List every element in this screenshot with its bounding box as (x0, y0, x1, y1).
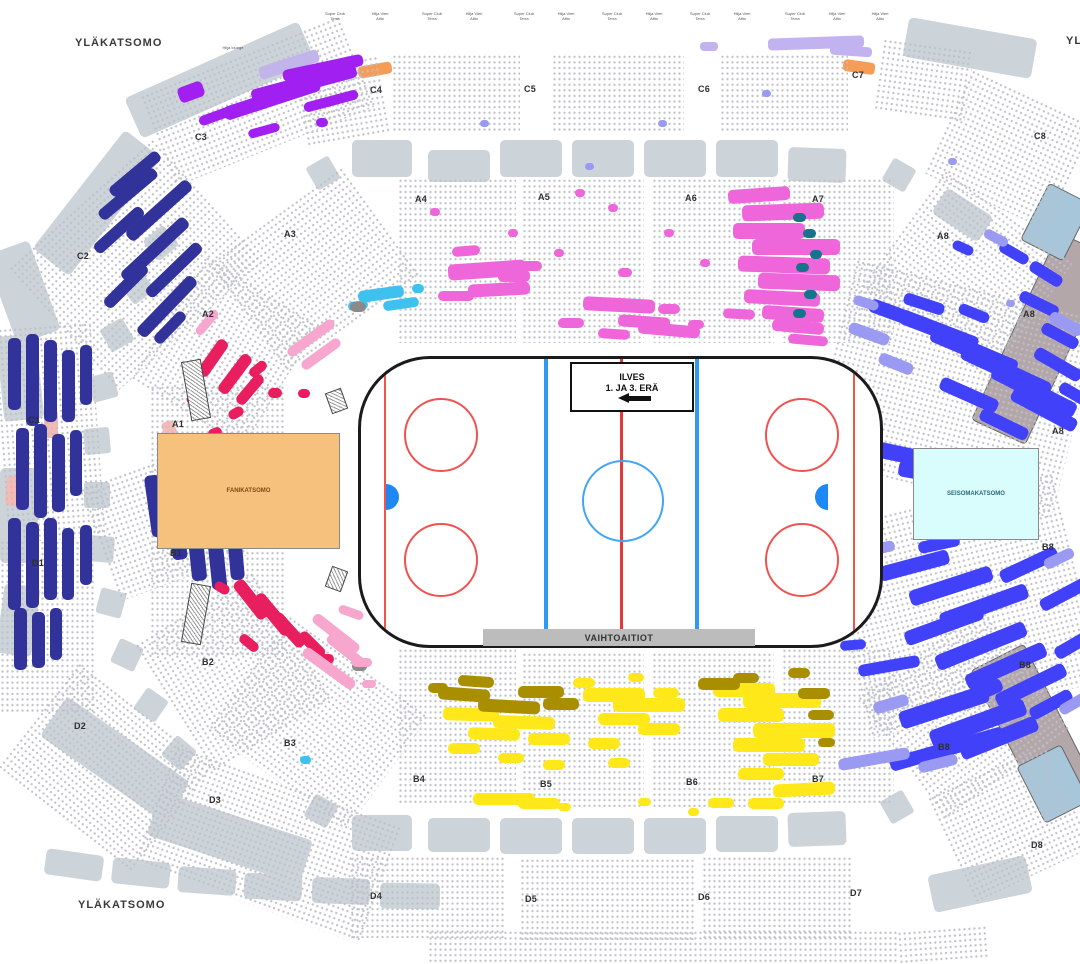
sold-seat-cluster-yellow[interactable] (733, 738, 805, 752)
sold-seat-cluster-yellow[interactable] (638, 798, 651, 806)
sold-seat-cluster-orchid[interactable] (498, 270, 530, 282)
sold-seat-cluster-peri[interactable] (1006, 300, 1015, 307)
concourse-slab (716, 140, 778, 177)
period-direction-box: ILVES 1. JA 3. ERÄ (570, 362, 694, 412)
suite-label: Hilja VieriAitio (466, 12, 483, 21)
section-badge-b8: B8 (1019, 660, 1031, 670)
sold-seat-cluster-olive[interactable] (818, 738, 835, 747)
section-badge-d5: D5 (525, 894, 537, 904)
section-badge-b8: B8 (1042, 542, 1054, 552)
sold-seat-cluster-peri[interactable] (948, 158, 957, 165)
sold-seat-cluster-navy[interactable] (62, 350, 75, 422)
sold-seat-cluster-yellow[interactable] (518, 798, 560, 809)
section-badge-a2: A2 (202, 309, 214, 319)
concourse-slab (428, 818, 490, 852)
sold-seat-cluster-olive[interactable] (428, 683, 448, 693)
sold-seat-cluster-yellow[interactable] (708, 798, 734, 808)
sold-seat-cluster-teal[interactable] (810, 250, 822, 259)
section-badge-c7: C7 (852, 70, 864, 80)
sold-seat-cluster-yellow[interactable] (468, 727, 520, 741)
goal-crease-right (815, 484, 828, 510)
sold-seat-cluster-yellow[interactable] (588, 738, 620, 749)
concourse-slab (572, 818, 634, 854)
seat-block[interactable] (520, 858, 695, 940)
concourse-slab (500, 140, 562, 177)
faceoff-circle-bottom-right (765, 523, 839, 597)
suite-label: Hilja VieriAitio (734, 12, 751, 21)
sold-seat-cluster-yellow[interactable] (498, 753, 524, 763)
sold-seat-cluster-lightpink[interactable] (362, 680, 376, 688)
sold-seat-cluster-olive[interactable] (808, 710, 834, 720)
concourse-slab (644, 818, 706, 854)
section-badge-b7: B7 (812, 774, 824, 784)
concourse-slab (500, 818, 562, 854)
sold-seat-cluster-teal[interactable] (793, 309, 806, 318)
sold-seat-cluster-teal[interactable] (804, 290, 817, 299)
faceoff-circle-top-right (765, 398, 839, 472)
section-badge-b3: B3 (284, 738, 296, 748)
suite-label: Hilja VieriAitio (558, 12, 575, 21)
sold-seat-cluster-teal[interactable] (803, 229, 816, 238)
faceoff-circle-bottom-left (404, 523, 478, 597)
sold-seat-cluster-lightpink[interactable] (337, 604, 365, 621)
section-badge-a8: A8 (1052, 426, 1064, 436)
center-circle (582, 460, 664, 542)
camera-platform (325, 566, 348, 592)
section-badge-c2: C2 (77, 251, 89, 261)
sold-seat-cluster-peri[interactable] (658, 120, 667, 127)
suite-label: Hilja VieriAitio (829, 12, 846, 21)
suite-label: Hilja VieriAitio (646, 12, 663, 21)
section-badge-a7: A7 (812, 194, 824, 204)
sold-seat-cluster-navy[interactable] (26, 334, 39, 426)
sold-seat-cluster-navy[interactable] (32, 612, 45, 668)
sold-seat-cluster-orchid[interactable] (438, 291, 474, 301)
benches-bar: VAIHTOAITIOT (483, 629, 755, 646)
sold-seat-cluster-yellow[interactable] (628, 673, 644, 682)
section-badge-a5: A5 (538, 192, 550, 202)
sold-seat-cluster-navy[interactable] (34, 424, 47, 518)
sold-seat-cluster-orchid[interactable] (664, 229, 674, 237)
section-badge-b6: B6 (686, 777, 698, 787)
sold-seat-cluster-orchid[interactable] (618, 268, 632, 277)
section-badge-b5: B5 (540, 779, 552, 789)
section-badge-c6: C6 (698, 84, 710, 94)
camera-platform (325, 388, 348, 414)
sold-seat-cluster-yellow[interactable] (653, 688, 679, 698)
concourse-slab (352, 140, 412, 177)
seat-block[interactable] (720, 54, 848, 134)
suite-label: Super ClubTerra (602, 12, 622, 21)
goal-crease-left (386, 484, 399, 510)
sold-seat-cluster-orchid[interactable] (554, 249, 564, 257)
sold-seat-cluster-navy[interactable] (44, 518, 57, 600)
sold-seat-cluster-yellow[interactable] (608, 758, 630, 768)
section-badge-d3: D3 (209, 795, 221, 805)
section-badge-a8: A8 (937, 231, 949, 241)
sold-seat-cluster-navy[interactable] (8, 518, 21, 610)
section-badge-d6: D6 (698, 892, 710, 902)
sold-seat-cluster-navy[interactable] (44, 340, 57, 422)
sold-seat-cluster-yellow[interactable] (543, 760, 565, 770)
section-badge-d2: D2 (74, 721, 86, 731)
section-badge-a3: A3 (284, 229, 296, 239)
sold-seat-cluster-navy[interactable] (52, 434, 65, 512)
sold-seat-cluster-orchid[interactable] (723, 308, 755, 320)
concourse-slab (716, 816, 778, 852)
left-arrow-icon (613, 394, 651, 402)
suite-label: Super ClubTerra (690, 12, 710, 21)
sold-seat-cluster-orchid[interactable] (558, 318, 584, 328)
section-badge-d4: D4 (370, 891, 382, 901)
sold-seat-cluster-navy[interactable] (16, 428, 29, 510)
sold-seat-cluster-crimson[interactable] (298, 389, 310, 398)
team-name: ILVES (619, 372, 644, 382)
section-badge-b8: B8 (938, 742, 950, 752)
sold-seat-cluster-yellow[interactable] (688, 808, 699, 816)
sold-seat-cluster-orchid[interactable] (575, 189, 585, 197)
sold-seat-cluster-navy[interactable] (62, 528, 74, 600)
sold-seat-cluster-teal[interactable] (793, 213, 806, 222)
concourse-slab (43, 848, 104, 882)
sold-seat-cluster-orchid[interactable] (700, 259, 710, 267)
sold-seat-cluster-olive[interactable] (518, 686, 564, 698)
sold-seat-cluster-orchid[interactable] (468, 281, 531, 297)
sold-seat-cluster-yellow[interactable] (558, 803, 571, 811)
sold-seat-cluster-olive[interactable] (543, 698, 579, 710)
sold-seat-cluster-yellow[interactable] (528, 733, 570, 745)
sold-seat-cluster-olive[interactable] (733, 673, 759, 683)
section-badge-c8: C8 (1034, 131, 1046, 141)
sold-seat-cluster-yellow[interactable] (573, 678, 595, 688)
period-text: 1. JA 3. ERÄ (606, 383, 659, 393)
standing-section-label: SEISOMAKATSOMO (947, 491, 1005, 497)
sold-seat-cluster-yellow[interactable] (738, 768, 784, 780)
suite-label: Super ClubTerra (325, 12, 345, 21)
suite-label: Hilja VieriAitio (372, 12, 389, 21)
arena-seat-map: YLÄKATSOMO YLÄKATSOMO YLÄKATSOMO A1A2A3A… (0, 0, 1080, 964)
suite-label: Super ClubTerra (422, 12, 442, 21)
sold-seat-cluster-orchid[interactable] (733, 223, 805, 239)
sold-seat-cluster-yellow[interactable] (613, 698, 685, 712)
upper-stand-label-top-right: YLÄKATSOMO (1066, 35, 1080, 47)
sold-seat-cluster-orchid[interactable] (788, 333, 829, 346)
seat-block[interactable] (702, 856, 852, 938)
suite-label: Hilja VieriAitio (872, 12, 889, 21)
sold-seat-cluster-yellow[interactable] (763, 753, 819, 766)
upper-stand-label-top-left: YLÄKATSOMO (75, 37, 162, 49)
seat-block[interactable] (428, 930, 898, 962)
sold-seat-cluster-yellow[interactable] (718, 708, 784, 722)
sold-seat-cluster-lightpink[interactable] (352, 658, 372, 667)
fan-stand-label: FANIKATSOMO (227, 488, 271, 494)
standing-section-box[interactable]: SEISOMAKATSOMO (913, 448, 1039, 540)
sold-seat-cluster-orchid[interactable] (508, 229, 518, 237)
sold-seat-cluster-navy[interactable] (14, 608, 27, 670)
sold-seat-cluster-orchid[interactable] (608, 204, 618, 212)
sold-seat-cluster-crimson[interactable] (268, 388, 282, 398)
sold-seat-cluster-sky[interactable] (300, 756, 311, 764)
concourse-slab (787, 811, 846, 847)
sold-seat-cluster-peri[interactable] (480, 120, 489, 127)
sold-seat-cluster-orchid[interactable] (598, 328, 631, 340)
section-badge-c3: C3 (195, 132, 207, 142)
section-badge-a6: A6 (685, 193, 697, 203)
section-badge-a8: A8 (1023, 309, 1035, 319)
sold-seat-cluster-teal[interactable] (796, 263, 809, 272)
blue-line-right (695, 359, 699, 645)
sold-seat-cluster-orchid[interactable] (430, 208, 440, 216)
section-badge-a4: A4 (415, 194, 427, 204)
sold-seat-cluster-orchid[interactable] (742, 203, 825, 222)
section-badge-d7: D7 (850, 888, 862, 898)
sold-seat-cluster-yellow[interactable] (448, 743, 480, 754)
upper-stand-label-bottom-left: YLÄKATSOMO (78, 899, 165, 911)
sold-seat-cluster-orchid[interactable] (728, 186, 791, 204)
section-badge-c5: C5 (524, 84, 536, 94)
section-badge-b1: B1 (170, 548, 182, 558)
sold-seat-cluster-orchid[interactable] (658, 304, 680, 314)
goal-line-right (853, 359, 855, 645)
suite-label: Hilja lounge (223, 46, 244, 51)
suite-label: Super ClubTerra (785, 12, 805, 21)
blue-line-left (544, 359, 548, 645)
section-badge-b4: B4 (413, 774, 425, 784)
concourse-slab (572, 140, 634, 177)
sold-seat-cluster-peri[interactable] (762, 90, 771, 97)
suite-label: Super ClubTerra (514, 12, 534, 21)
sold-seat-cluster-navy[interactable] (70, 430, 82, 496)
section-badge-c4: C4 (370, 85, 382, 95)
sold-seat-cluster-navy[interactable] (80, 525, 92, 585)
sold-seat-cluster-olive[interactable] (788, 668, 810, 678)
sold-seat-cluster-peri[interactable] (585, 163, 594, 170)
sold-seat-cluster-sky[interactable] (412, 284, 424, 293)
section-badge-c1: C1 (28, 415, 40, 425)
sold-seat-cluster-orchid[interactable] (752, 239, 840, 255)
tier-band-lavender (700, 42, 718, 51)
fan-stand-box[interactable]: FANIKATSOMO (157, 433, 340, 549)
sold-seat-cluster-navy[interactable] (50, 608, 62, 660)
sold-seat-cluster-orchid[interactable] (520, 261, 542, 271)
section-badge-d1: D1 (32, 558, 44, 568)
sold-seat-cluster-yellow[interactable] (638, 723, 680, 735)
section-badge-b2: B2 (202, 657, 214, 667)
sold-seat-cluster-orchid[interactable] (688, 320, 704, 329)
sold-seat-cluster-yellow[interactable] (748, 798, 784, 809)
sold-seat-cluster-olive[interactable] (798, 688, 830, 699)
sold-seat-cluster-navy[interactable] (8, 338, 21, 410)
section-badge-a1: A1 (172, 419, 184, 429)
sold-seat-cluster-navy[interactable] (80, 345, 92, 405)
seat-block[interactable] (897, 925, 989, 964)
sold-seat-cluster-purple[interactable] (316, 118, 328, 127)
sold-seat-cluster-gray[interactable] (350, 302, 366, 312)
faceoff-circle-top-left (404, 398, 478, 472)
seat-block[interactable] (392, 54, 520, 134)
concourse-slab (644, 140, 706, 177)
benches-label: VAIHTOAITIOT (585, 633, 654, 643)
sold-seat-cluster-orchid[interactable] (758, 273, 841, 292)
sold-seat-cluster-yellow[interactable] (753, 723, 835, 738)
section-badge-d8: D8 (1031, 840, 1043, 850)
